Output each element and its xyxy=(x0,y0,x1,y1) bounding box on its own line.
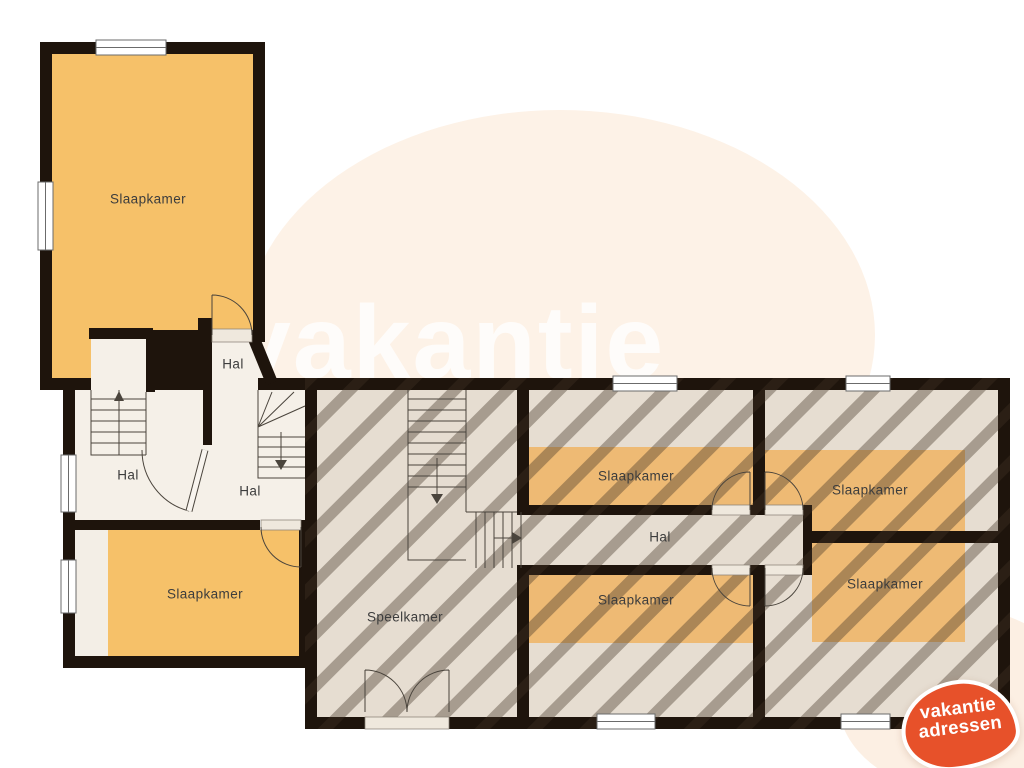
label-slaapkamer-top-middle: Slaapkamer xyxy=(598,469,674,484)
label-hal-corridor: Hal xyxy=(649,530,670,545)
label-slaapkamer-top-left: Slaapkamer xyxy=(110,192,186,207)
vakantieadressen-logo: vakantie adressen xyxy=(898,672,1020,768)
label-hal-left: Hal xyxy=(117,468,138,483)
floorplan-canvas: vakantie xyxy=(0,0,1024,768)
label-speelkamer: Speelkamer xyxy=(367,610,443,625)
label-slaapkamer-bottom-middle: Slaapkamer xyxy=(598,593,674,608)
floorplan-svg: vakantie xyxy=(0,0,1024,768)
label-slaapkamer-bottom-left: Slaapkamer xyxy=(167,587,243,602)
label-slaapkamer-top-right: Slaapkamer xyxy=(832,483,908,498)
label-slaapkamer-bottom-right: Slaapkamer xyxy=(847,577,923,592)
label-hal-upper-small: Hal xyxy=(222,357,243,372)
label-hal-right: Hal xyxy=(239,484,260,499)
